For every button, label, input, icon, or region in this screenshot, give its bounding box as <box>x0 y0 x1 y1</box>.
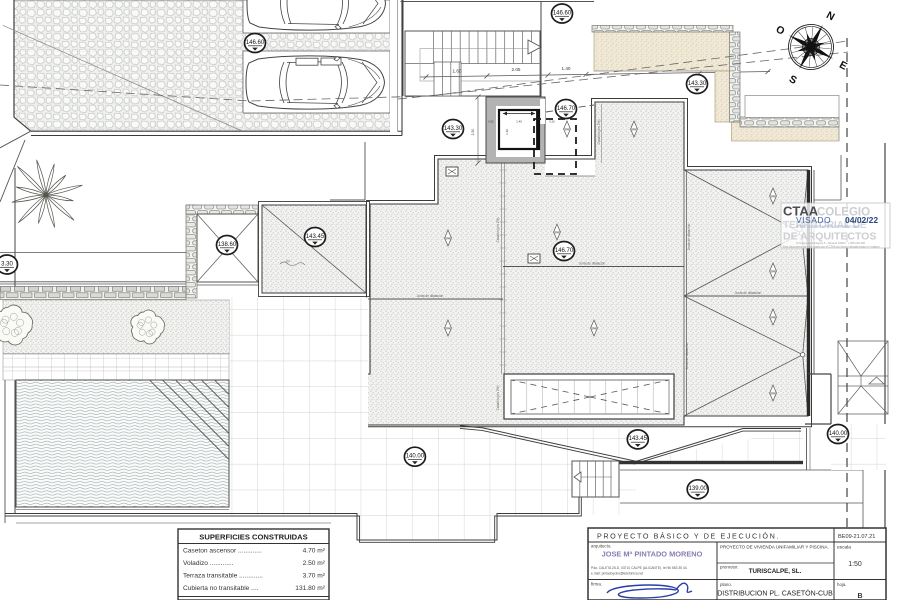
svg-text:N: N <box>824 9 836 23</box>
svg-text:Cubierta no transitable ....: Cubierta no transitable .... <box>183 585 259 592</box>
svg-text:140.00: 140.00 <box>406 454 425 460</box>
svg-text:DE ARQUITECTOS: DE ARQUITECTOS <box>783 231 876 243</box>
svg-text:TURISCALPE, SL.: TURISCALPE, SL. <box>749 568 802 575</box>
svg-text:DISTRIBUCION PL. CASETÓN-CUB: DISTRIBUCION PL. CASETÓN-CUB <box>717 589 833 598</box>
svg-text:firma.: firma. <box>591 582 602 587</box>
svg-text:B: B <box>857 593 862 600</box>
svg-text:2.05: 2.05 <box>512 67 521 72</box>
svg-text:Canalón (p/n 2%): Canalón (p/n 2%) <box>496 386 500 411</box>
svg-text:Voladizo .............: Voladizo ............. <box>183 560 234 567</box>
svg-text:146.70: 146.70 <box>557 106 576 112</box>
svg-text:0.05: 0.05 <box>488 120 494 124</box>
svg-text:O: O <box>774 23 787 37</box>
svg-text:PROYECTO DE VIVIENDA UNIFAM: PROYECTO DE VIVIENDA UNIFAMILIAR Y PISCI… <box>720 545 829 550</box>
svg-text:SUPERFICIES CONSTRUIDAS: SUPERFICIES CONSTRUIDAS <box>199 533 307 542</box>
svg-text:2.30: 2.30 <box>471 129 475 136</box>
svg-text:143.45: 143.45 <box>306 234 325 240</box>
svg-text:131.80 m²: 131.80 m² <box>295 585 325 592</box>
svg-text:Caseton ascensor .............: Caseton ascensor ............. <box>183 548 262 555</box>
svg-text:Este documento ha sido visado: Este documento ha sido visado por el CTA… <box>783 245 880 249</box>
svg-text:Junta de dilatación: Junta de dilatación <box>579 262 606 266</box>
svg-text:Nº REG. 2022/00385 AUTENTICID: Nº REG. 2022/00385 AUTENTICIDAD VERIFICA… <box>796 225 860 229</box>
svg-text:138.60: 138.60 <box>218 242 237 248</box>
svg-text:JOSE Mª PINTADO MORENO: JOSE Mª PINTADO MORENO <box>602 550 703 559</box>
svg-text:Junta de dilatación: Junta de dilatación <box>417 294 444 298</box>
svg-text:PROYECTO BÁSICO Y DE EJECU: PROYECTO BÁSICO Y DE EJECUCIÓN. <box>597 532 780 541</box>
svg-text:143.30: 143.30 <box>444 126 463 132</box>
svg-text:04/02/22: 04/02/22 <box>845 215 878 225</box>
svg-text:2.50 m²: 2.50 m² <box>303 560 326 567</box>
svg-text:146.60: 146.60 <box>553 10 572 16</box>
svg-text:Canalón (p/n 2%): Canalón (p/n 2%) <box>597 120 601 145</box>
svg-text:1:50: 1:50 <box>848 561 862 568</box>
svg-text:hoja.: hoja. <box>837 582 847 587</box>
svg-text:e.mail: pintadoycino@telefoni: e.mail: pintadoycino@telefonica.net <box>591 572 643 576</box>
svg-text:Pda. CALETA 25-D, 03710 CALPE: Pda. CALETA 25-D, 03710 CALPE (ALICANTE)… <box>591 566 688 570</box>
svg-text:S: S <box>787 73 799 87</box>
svg-text:143.30: 143.30 <box>688 81 707 87</box>
svg-text:4.70 m²: 4.70 m² <box>303 548 326 555</box>
svg-text:VISADO: VISADO <box>796 215 831 225</box>
svg-text:arquitecto.: arquitecto. <box>591 544 612 549</box>
svg-text:Junta de dilatación: Junta de dilatación <box>687 223 691 250</box>
svg-text:1.40: 1.40 <box>505 129 509 135</box>
svg-text:139.00: 139.00 <box>689 486 708 492</box>
svg-text:1.60: 1.60 <box>453 69 462 74</box>
svg-text:BE09-21.07.21: BE09-21.07.21 <box>838 534 875 540</box>
svg-text:140.00: 140.00 <box>829 431 848 437</box>
svg-text:1.40: 1.40 <box>562 66 571 71</box>
svg-text:Canalón (p/n 2%): Canalón (p/n 2%) <box>496 218 500 243</box>
svg-text:3.30: 3.30 <box>1 261 13 267</box>
svg-text:escala: escala <box>837 545 851 551</box>
svg-text:Terraza transitable ..........: Terraza transitable ............. <box>183 573 263 580</box>
svg-text:Junta de dilatación: Junta de dilatación <box>685 342 689 369</box>
svg-text:plano.: plano. <box>720 582 732 587</box>
svg-text:143.45: 143.45 <box>629 436 648 442</box>
svg-text:Junta de dilatación: Junta de dilatación <box>735 291 762 295</box>
svg-text:146.70: 146.70 <box>555 248 574 254</box>
svg-text:146.60: 146.60 <box>246 40 265 46</box>
svg-text:0.20: 0.20 <box>549 120 555 124</box>
svg-text:3.70 m²: 3.70 m² <box>303 573 326 580</box>
svg-text:C/ Duque de Zaragoza 6 - Ali: C/ Duque de Zaragoza 6 - Alicante 03003 … <box>796 241 866 245</box>
svg-text:promotor.: promotor. <box>720 565 739 570</box>
svg-text:1.40: 1.40 <box>516 120 522 124</box>
